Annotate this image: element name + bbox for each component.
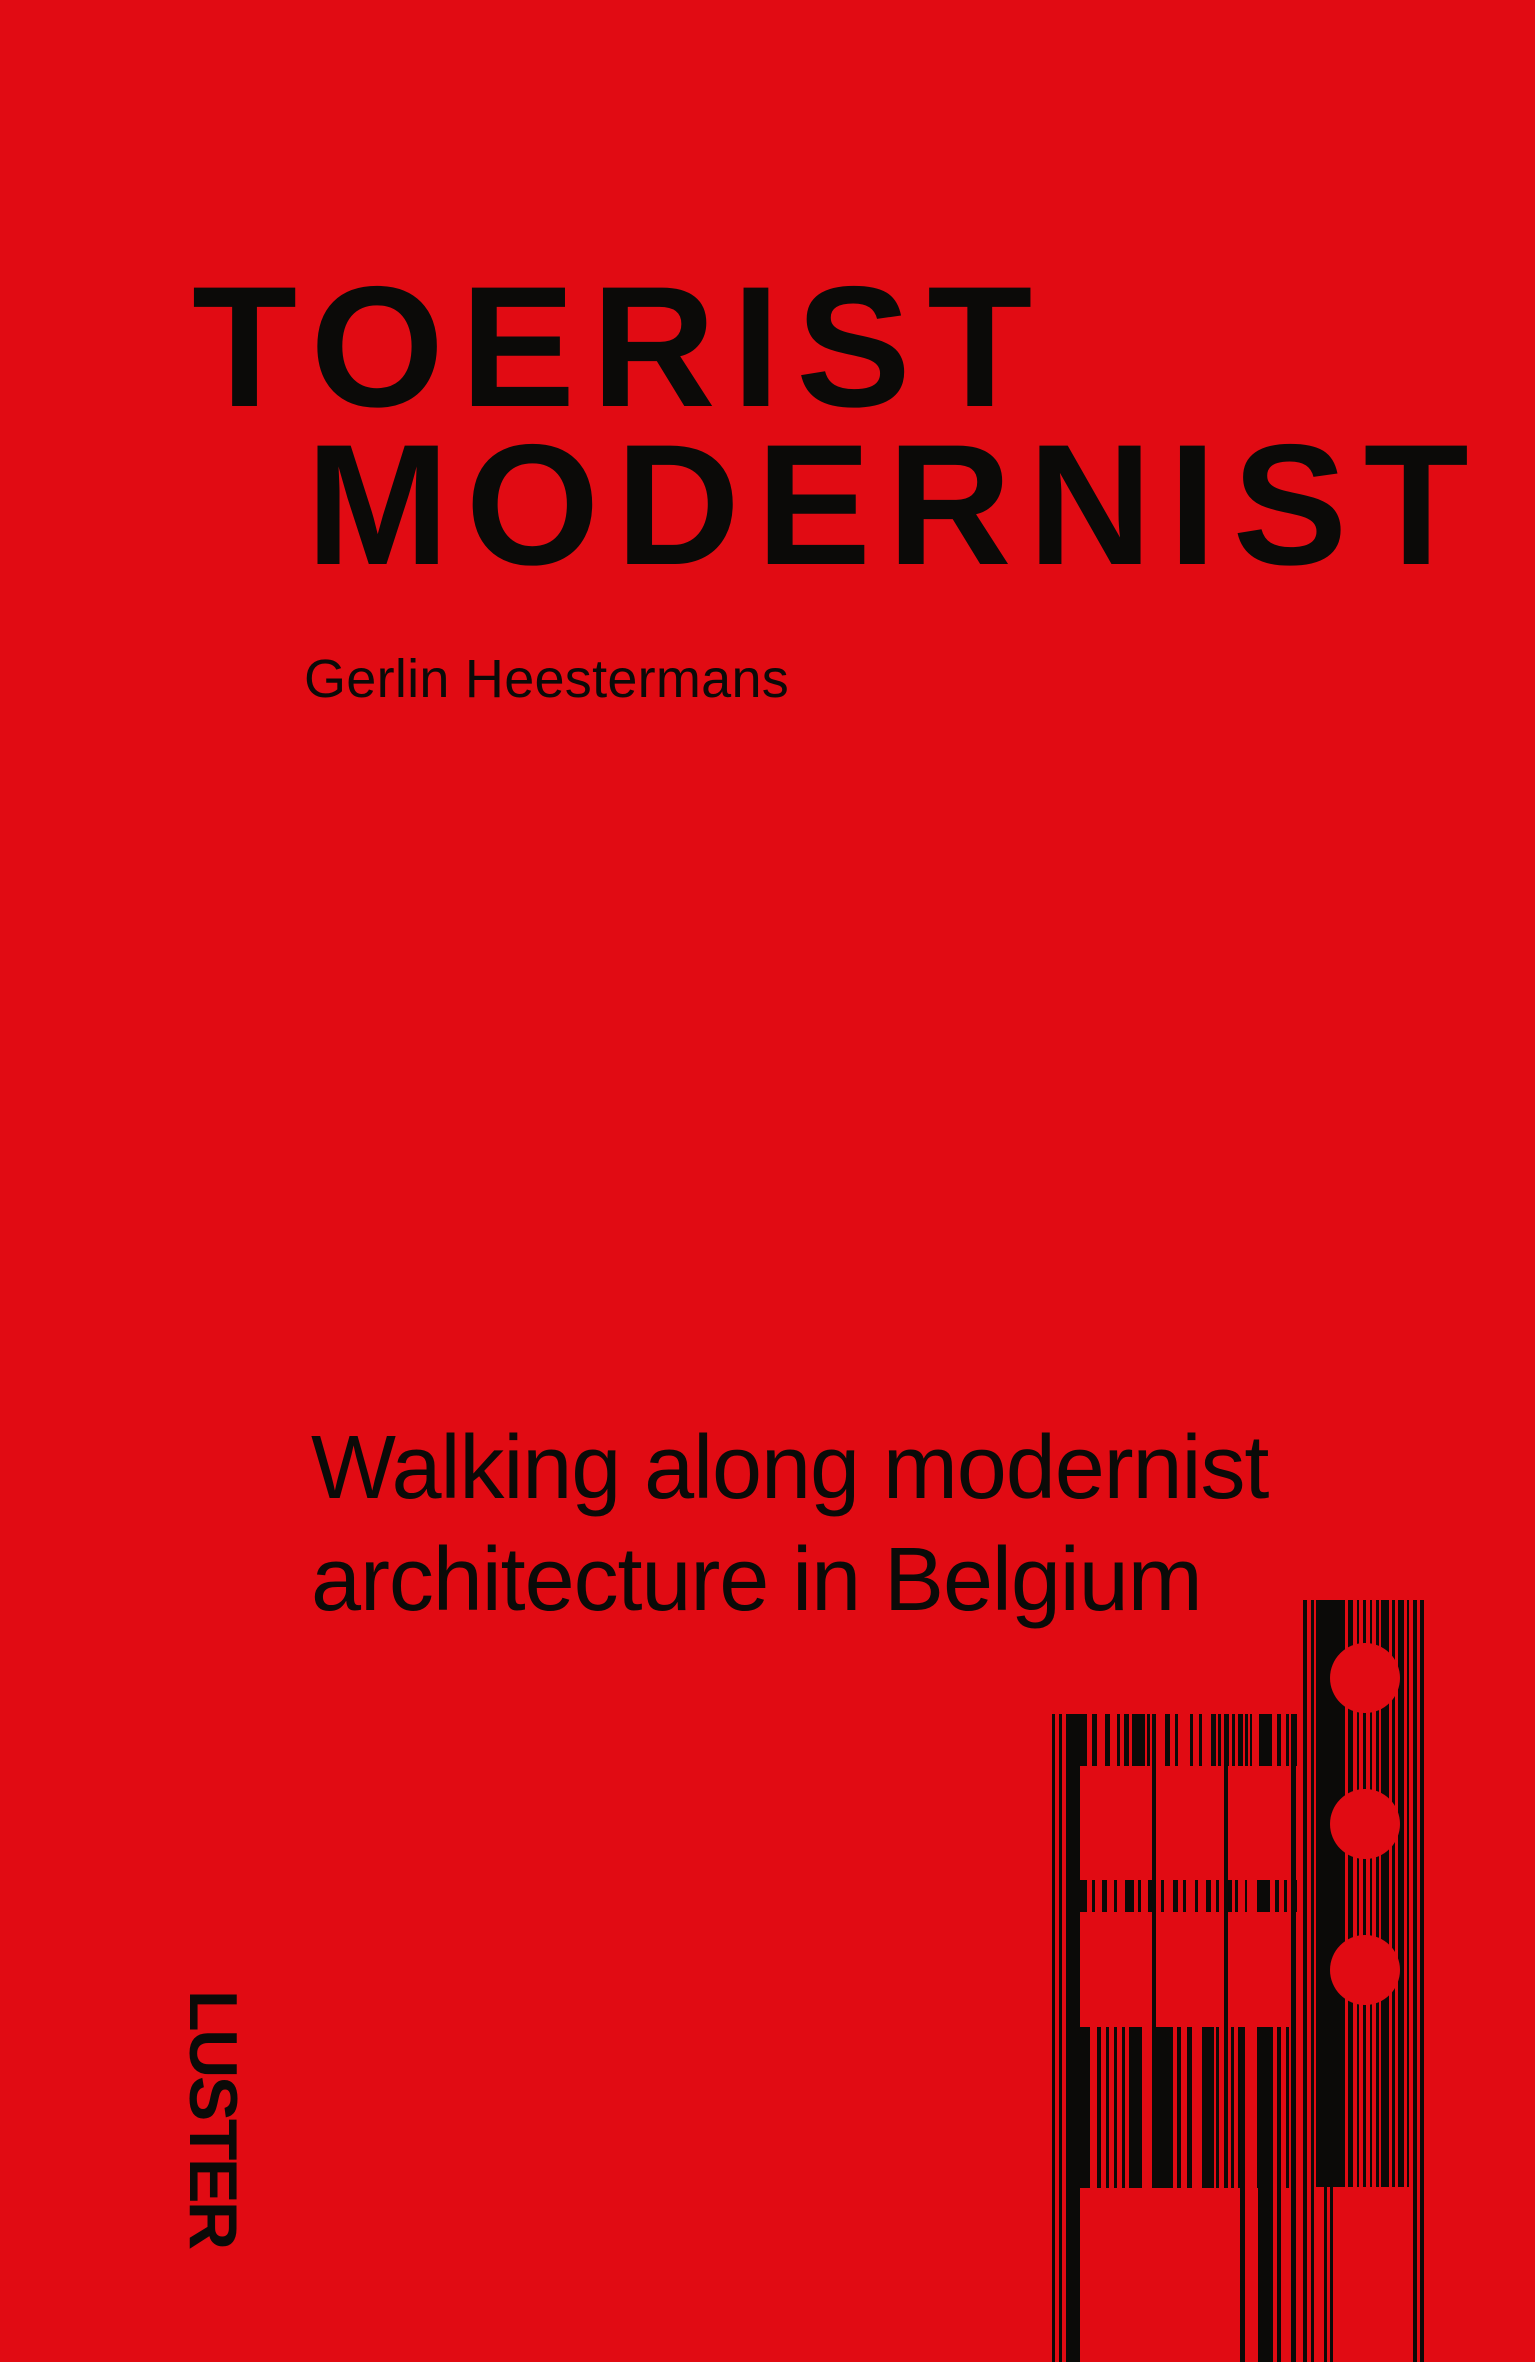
artwork-bar [1257,1880,1270,1912]
artwork-bar [1286,2027,1289,2188]
artwork-bar [1206,1880,1211,1912]
artwork-bar [1092,1880,1095,1912]
subtitle: Walking along modernist architecture in … [311,1412,1268,1636]
artwork-bar [1165,1714,1170,1766]
artwork-bar [1291,1714,1296,2362]
artwork-bar [1277,2027,1281,2188]
artwork-bar [1381,1600,1389,2187]
title-line-2: MODERNIST [306,426,1485,584]
artwork-bar [1117,1714,1120,1766]
artwork-bar [1218,1714,1221,1766]
artwork-bar [1216,2027,1219,2188]
artwork-bar [1392,1600,1395,2187]
artwork-bar [1125,1880,1134,1912]
artwork-bar [1316,1600,1331,2187]
artwork-bar [1187,2027,1192,2188]
artwork-bar [1348,1600,1353,2187]
artwork-bar [1152,1714,1156,2188]
artwork-bar [1238,1714,1243,1766]
artwork-bar [1190,1714,1193,1766]
artwork-bar [1292,1714,1297,1766]
artwork-bar [1173,1880,1178,1912]
artwork-bar [1059,1714,1062,2362]
subtitle-line-1: Walking along modernist [311,1412,1268,1524]
artwork-bar [1420,1600,1424,2362]
artwork-bar [1202,2027,1214,2188]
artwork-bar [1080,1880,1087,1912]
publisher-logo-luster: LUSTER [180,1990,246,2248]
artwork-bar [1124,1714,1129,1766]
artwork-bar [1199,1714,1202,1766]
artwork-bar [1175,1714,1178,1766]
artwork-bar [1231,2027,1234,2188]
artwork-bar [1258,2027,1273,2362]
artwork-bar [1240,2027,1245,2362]
artwork-bar [1284,1880,1287,1912]
artwork-bar [1183,1880,1186,1912]
artwork-bar [1195,1880,1198,1912]
artwork-bar [1245,1714,1248,1766]
book-cover: TOERISTMODERNIST Gerlin Heestermans Walk… [0,0,1535,2362]
artwork-bar [1413,1600,1417,2362]
artwork-bar [1357,1600,1359,2187]
artwork-bar [1138,1880,1141,1912]
artwork-bar [1333,1600,1345,2187]
artwork-bar [1398,1600,1404,2187]
artwork-bar [1161,1880,1164,1912]
artwork-bar [1330,1600,1333,2362]
artwork-bar [1066,1714,1080,2362]
artwork-bar [1148,1880,1153,1912]
artwork-bar [1311,1600,1314,2362]
artwork-bar [1259,1714,1272,1766]
artwork-bar [1370,1600,1372,2187]
artwork-bar [1102,1880,1107,1912]
artwork-bar [1324,1600,1327,2362]
artwork-bar [1227,1880,1232,1912]
artwork-bar [1216,1880,1219,1912]
artwork-bar [1097,2027,1101,2188]
artwork-bar [1376,1600,1379,2187]
artwork-bar [1092,1714,1097,1766]
artwork-bar [1114,2027,1117,2188]
artwork-bar [1232,1714,1235,1766]
artwork-bar [1277,2027,1281,2362]
artwork-circle-cutout [1330,1789,1400,1859]
artwork-bar [1275,1880,1279,1912]
artwork-bar [1080,1714,1087,1766]
artwork-bar [1245,1880,1247,1912]
artwork-bar [1106,2027,1109,2188]
artwork-bar [1147,1714,1150,1766]
artwork-bar [1132,1714,1145,1766]
artwork-bar [1286,1714,1289,1766]
author-name: Gerlin Heestermans [304,652,789,706]
artwork-bar [1363,1600,1366,2187]
artwork-bar [1277,1714,1281,1766]
artwork-bar [1105,1714,1110,1766]
artwork-bar [1152,2027,1173,2188]
artwork-bar [1114,1880,1117,1912]
artwork-bar [1129,2027,1142,2188]
artwork-bar [1235,1880,1238,1912]
artwork-bar [1122,2027,1125,2188]
artwork-bar [1257,2027,1273,2188]
artwork-bar [1407,1600,1409,2187]
book-title: TOERISTMODERNIST [192,268,1485,584]
artwork-circle-cutout [1330,1935,1400,2005]
artwork-bar [1177,2027,1181,2188]
artwork-bar [1225,1714,1229,1766]
subtitle-line-2: architecture in Belgium [311,1524,1268,1636]
artwork-bar [1291,2027,1296,2188]
artwork-bar [1224,2027,1227,2188]
artwork-bar [1238,2027,1241,2188]
artwork-bar [1052,1714,1055,2362]
artwork-bar [1080,2027,1090,2188]
artwork-bar [1303,1600,1307,2362]
artwork-circle-cutout [1330,1643,1400,1713]
artwork-bar [1250,1714,1252,1766]
artwork-bar [1211,1714,1216,1766]
artwork-bar [1292,1880,1297,1912]
artwork-bar [1152,1714,1156,1766]
artwork-bar [1224,1714,1228,2188]
